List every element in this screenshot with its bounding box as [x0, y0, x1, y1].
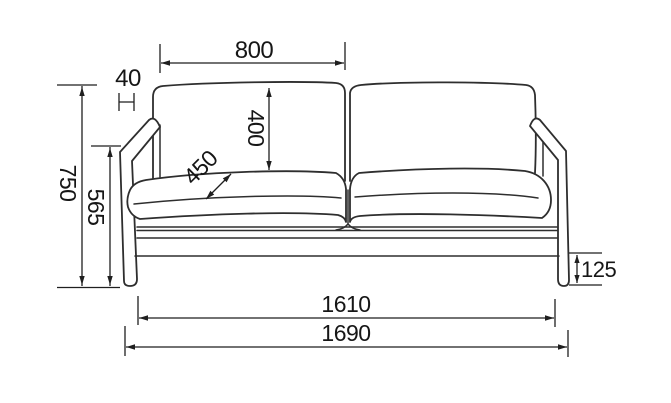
frame-rails — [135, 227, 559, 256]
dim-40-bracket — [119, 93, 134, 111]
dim-label-565: 565 — [83, 189, 109, 226]
dim-750-arrow-bottom — [79, 276, 84, 285]
dim-1690-arrow-left — [126, 344, 135, 349]
dim-125-arrow-top — [574, 255, 579, 263]
dim-565-arrow-top — [107, 148, 112, 157]
dim-1690: 1690 — [125, 320, 568, 357]
dim-label-750: 750 — [55, 165, 81, 202]
dim-800-arrow-right — [335, 60, 344, 65]
dim-125-arrow-bottom — [574, 275, 579, 283]
dim-400: 400 — [243, 88, 272, 170]
dim-label-1610: 1610 — [321, 291, 370, 317]
dim-750-arrow-top — [79, 87, 84, 96]
dim-800-arrow-left — [161, 60, 170, 65]
dim-400-arrow-top — [266, 88, 271, 97]
dim-40: 40 — [115, 65, 141, 111]
dim-label-40: 40 — [115, 65, 141, 92]
dim-label-125: 125 — [581, 257, 616, 282]
dim-label-1690: 1690 — [321, 320, 370, 346]
dim-400-arrow-bottom — [266, 161, 271, 170]
dim-565-arrow-bottom — [107, 276, 112, 285]
sofa-outline — [120, 82, 569, 286]
dim-1610-arrow-right — [545, 315, 554, 320]
backrest-cushion-right — [350, 82, 536, 181]
diagram-svg: 800 40 400 450 750 565 — [0, 0, 671, 403]
dim-125: 125 — [569, 253, 616, 285]
dim-1690-arrow-right — [558, 344, 567, 349]
dim-565: 565 — [83, 146, 121, 286]
sofa-dimension-diagram: 800 40 400 450 750 565 — [0, 0, 671, 403]
dim-label-800: 800 — [235, 37, 274, 64]
dim-label-400: 400 — [243, 110, 269, 147]
dim-1610-arrow-left — [139, 315, 148, 320]
dim-800: 800 — [160, 37, 345, 73]
